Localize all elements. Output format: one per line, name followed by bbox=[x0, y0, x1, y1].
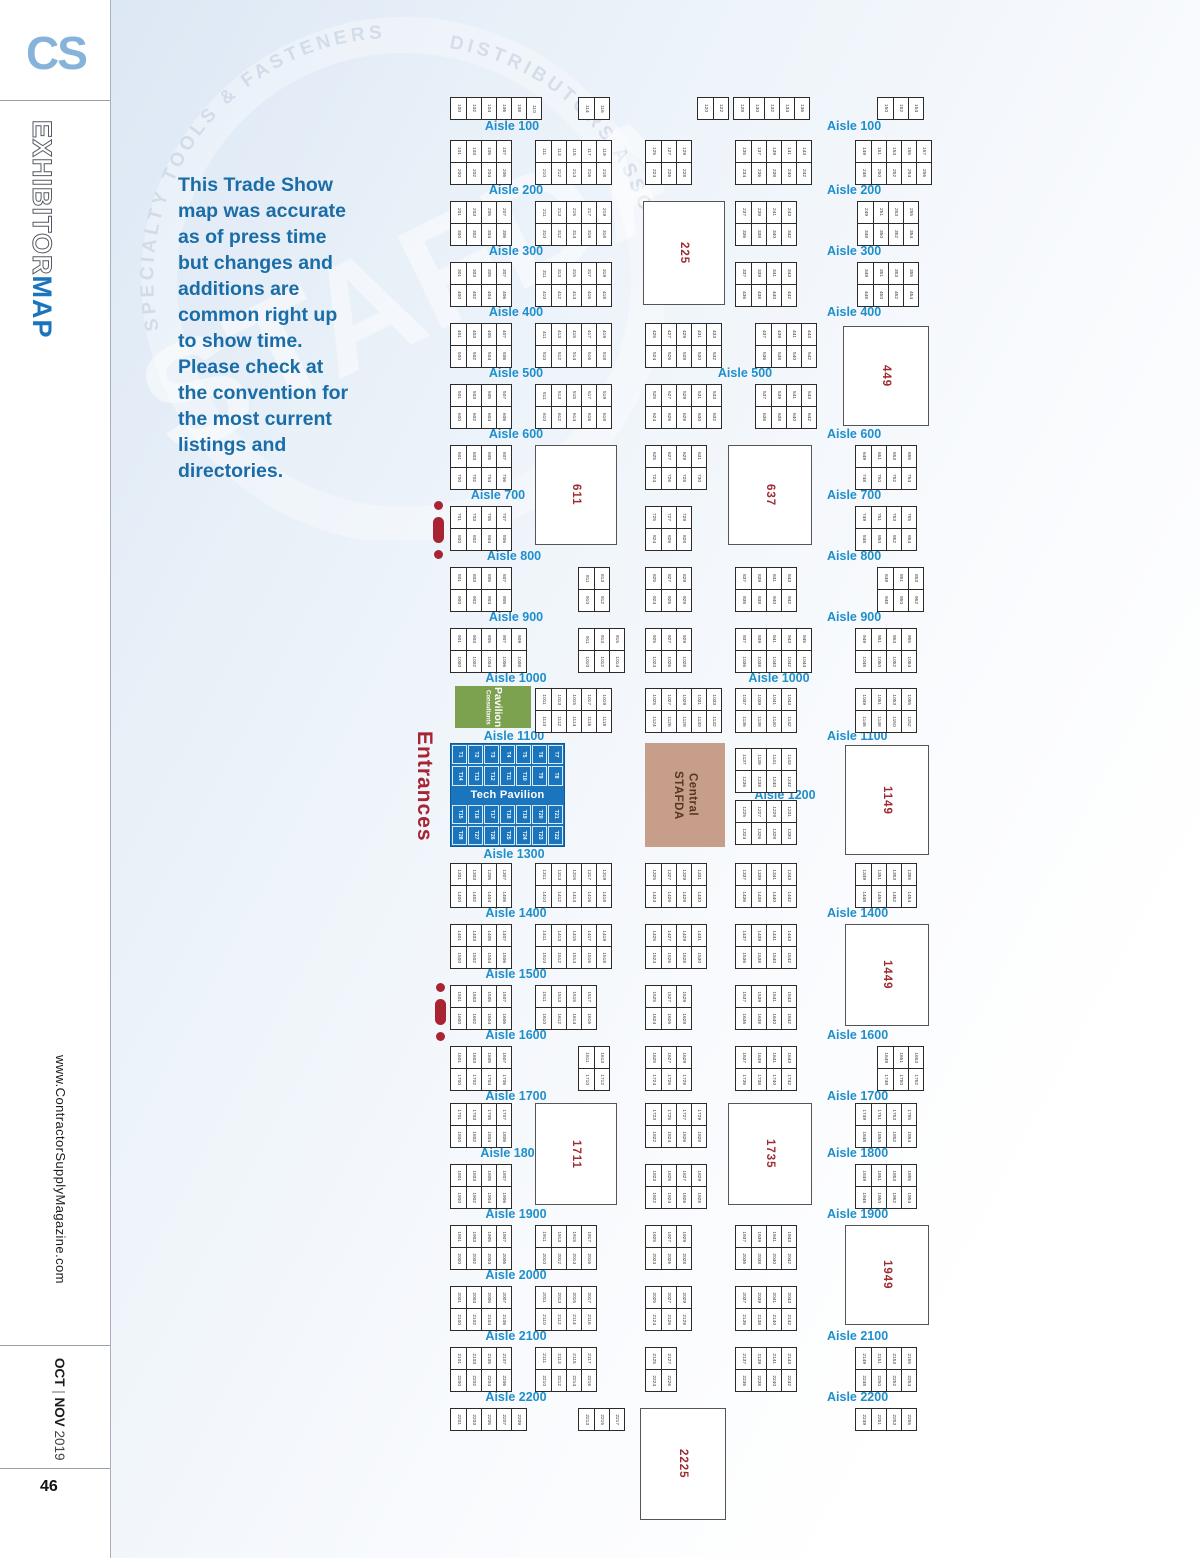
booth-number: 1307 bbox=[502, 869, 507, 880]
booth-number: 1319 bbox=[602, 869, 607, 880]
booth-cell: 2216 bbox=[581, 1370, 596, 1391]
booth-number: 953 bbox=[892, 635, 897, 643]
booth-cell: 618 bbox=[596, 407, 611, 428]
booth-cell: 951 bbox=[871, 629, 886, 650]
booth-cell: 929 bbox=[676, 629, 691, 650]
booth-number: 1602 bbox=[472, 1013, 477, 1024]
booth-cell: 306 bbox=[496, 224, 511, 245]
booth-cell: 2100 bbox=[451, 1309, 466, 1330]
booth-cell: 913 bbox=[594, 629, 609, 650]
booth-number: 1537 bbox=[741, 991, 746, 1002]
booth-cell: 1501 bbox=[451, 986, 466, 1007]
booth-cell: 1755 bbox=[901, 1104, 916, 1125]
booth-number: 443 bbox=[807, 330, 812, 338]
booth-block: 221322152217 bbox=[578, 1408, 625, 1431]
big-booth: 1149 bbox=[845, 745, 929, 855]
booth-number: 1526 bbox=[667, 952, 672, 963]
booth-cell: 707 bbox=[496, 507, 511, 528]
booth-number: 1712 bbox=[600, 1074, 605, 1085]
booth-block: 21372139214121432236223822402242 bbox=[735, 1347, 797, 1392]
booth-number: 136 bbox=[800, 104, 805, 112]
booth-cell: 2002 bbox=[466, 1248, 481, 1269]
booth-number: 1901 bbox=[456, 1231, 461, 1242]
booth-cell: 1110 bbox=[536, 711, 551, 732]
booth-row: 1636163816401642 bbox=[736, 1007, 796, 1029]
booth-number: 850 bbox=[877, 535, 882, 543]
booth-cell: 1524 bbox=[646, 947, 661, 968]
booth-number: 1900 bbox=[456, 1192, 461, 1203]
booth-number: 2139 bbox=[757, 1353, 762, 1364]
booth-number: 1702 bbox=[472, 1074, 477, 1085]
booth-number: 438 bbox=[757, 291, 762, 299]
booth-cell: 510 bbox=[536, 346, 551, 367]
booth-cell: 116 bbox=[594, 98, 609, 119]
tech-booth-cell: T9 bbox=[532, 766, 547, 785]
aisle-label: Aisle 1400 bbox=[485, 906, 546, 920]
booth-cell: 1325 bbox=[646, 864, 661, 885]
booth-number: 530 bbox=[697, 352, 702, 360]
booth-row: 811813 bbox=[579, 568, 609, 589]
booth-cell: 1702 bbox=[466, 1069, 481, 1090]
booth-number: 614 bbox=[572, 413, 577, 421]
booth-number: 1410 bbox=[541, 891, 546, 902]
booth-cell: 907 bbox=[496, 629, 511, 650]
booth-number: 807 bbox=[502, 574, 507, 582]
booth-row: 911913915 bbox=[579, 629, 624, 650]
booth-number: 1905 bbox=[487, 1231, 492, 1242]
booth-row: 101103105107 bbox=[451, 141, 511, 162]
booth-number: 1625 bbox=[651, 1052, 656, 1063]
booth-block: 164916511653174817501752 bbox=[877, 1046, 924, 1091]
booth-number: 1911 bbox=[541, 1231, 546, 1241]
booth-row: 410412414416418 bbox=[536, 284, 611, 306]
booth-number: 804 bbox=[487, 535, 492, 543]
booth-number: 519 bbox=[602, 391, 607, 399]
aisle-label: Aisle 100 bbox=[485, 119, 539, 133]
booth-number: 353 bbox=[894, 269, 899, 277]
booth-cell: 936 bbox=[736, 590, 751, 611]
booth-row: 824826828 bbox=[646, 528, 691, 550]
booth-cell: 1500 bbox=[451, 947, 466, 968]
booth-cell: 1624 bbox=[646, 1008, 661, 1029]
booth-cell: 1948 bbox=[856, 1187, 871, 1208]
booth-cell: 1848 bbox=[856, 1126, 871, 1147]
booth-cell: 1603 bbox=[466, 1047, 481, 1068]
booth-cell: 700 bbox=[451, 468, 466, 489]
booth-cell: 2249 bbox=[856, 1409, 871, 1430]
booth-cell: 900 bbox=[451, 590, 466, 611]
booth-block: 925927929102410261028 bbox=[645, 628, 692, 673]
booth-cell: 1803 bbox=[466, 1165, 481, 1186]
booth-cell: 107 bbox=[496, 141, 511, 162]
booth-number: 441 bbox=[792, 330, 797, 338]
booth-number: 2040 bbox=[772, 1253, 777, 1264]
booth-row: 162516271629 bbox=[646, 1047, 691, 1068]
booth-cell: 410 bbox=[536, 285, 551, 306]
booth-number: 1031 bbox=[697, 694, 702, 705]
booth-row: 501503505507 bbox=[451, 385, 511, 406]
consultants-pavilion-line2: Pavilion bbox=[491, 687, 503, 727]
booth-number: 802 bbox=[472, 535, 477, 543]
booth-cell: 2104 bbox=[481, 1309, 496, 1330]
booth-cell: 640 bbox=[786, 407, 801, 428]
booth-number: 955 bbox=[907, 635, 912, 643]
tech-booth-cell: T11 bbox=[500, 766, 515, 785]
booth-number: 727 bbox=[667, 513, 672, 521]
booth-block: 525527529531533624626628630632 bbox=[645, 384, 722, 429]
booth-block: 601603605607700702704706 bbox=[450, 445, 512, 490]
booth-number: 1518 bbox=[602, 952, 607, 963]
booth-cell: 2102 bbox=[466, 1309, 481, 1330]
booth-block: 1611161317101712 bbox=[578, 1046, 610, 1091]
aisle-label: Aisle 1000 bbox=[748, 671, 809, 685]
booth-number: 512 bbox=[557, 352, 562, 360]
booth-number: 2025 bbox=[651, 1292, 656, 1303]
tech-booth-cell: T24 bbox=[516, 826, 531, 845]
booth-cell: 536 bbox=[756, 346, 771, 367]
booth-number: 1755 bbox=[907, 1109, 912, 1120]
booth-row: 1436143814401442 bbox=[736, 885, 796, 907]
booth-number: 1823 bbox=[651, 1170, 656, 1181]
booth-number: 1939 bbox=[757, 1231, 762, 1242]
booth-number: 517 bbox=[587, 391, 592, 399]
booth-row: 1424142614281430 bbox=[646, 885, 706, 907]
booth-row: 10111013101510171019 bbox=[536, 689, 611, 710]
booth-cell: 829 bbox=[676, 568, 691, 589]
booth-number: 1313 bbox=[557, 869, 562, 880]
booth-number: 1606 bbox=[502, 1013, 507, 1024]
booth-row: 1823182518271829 bbox=[646, 1165, 706, 1186]
booth-number: 1511 bbox=[541, 991, 546, 1001]
booth-number: 403 bbox=[472, 330, 477, 338]
booth-number: 116 bbox=[600, 105, 605, 113]
aisle-label: Aisle 1900 bbox=[827, 1207, 888, 1221]
booth-cell: 1939 bbox=[751, 1226, 766, 1247]
booth-number: 253 bbox=[894, 208, 899, 216]
booth-block: 100102104106108110 bbox=[450, 97, 542, 120]
booth-number: 905 bbox=[487, 635, 492, 643]
booth-number: 1904 bbox=[487, 1192, 492, 1203]
tech-booth-cell: T16 bbox=[468, 805, 483, 824]
booth-cell: 1514 bbox=[566, 947, 581, 968]
booth-number: 913 bbox=[600, 635, 605, 643]
booth-cell: 1640 bbox=[766, 1008, 781, 1029]
booth-number: 1742 bbox=[787, 1074, 792, 1085]
booth-block: 849851853948950952 bbox=[877, 567, 924, 612]
booth-cell: 2213 bbox=[579, 1409, 594, 1430]
booth-number: 706 bbox=[502, 474, 507, 482]
aisle-label: Aisle 700 bbox=[827, 488, 881, 502]
tech-pavilion-row: T28T27T26T25T24T23T22 bbox=[451, 825, 564, 846]
booth-number: 1417 bbox=[587, 930, 592, 941]
booth-cell: 318 bbox=[596, 224, 611, 245]
booth-block: 1411141314151417141915101512151415161518 bbox=[535, 924, 612, 969]
booth-cell: 417 bbox=[581, 324, 596, 345]
booth-cell: 1442 bbox=[781, 886, 796, 907]
booth-cell: 1405 bbox=[481, 925, 496, 946]
booth-cell: 104 bbox=[481, 98, 496, 119]
booth-block: 1011101310151017101911101112111411161118 bbox=[535, 688, 612, 733]
tech-booth-number: T14 bbox=[457, 771, 462, 780]
tech-booth-number: T21 bbox=[553, 810, 558, 819]
booth-row: 135137139141143 bbox=[736, 141, 811, 162]
booth-number: 120 bbox=[703, 104, 708, 112]
booth-cell: 1039 bbox=[751, 689, 766, 710]
tech-booth-number: T19 bbox=[521, 810, 526, 819]
tech-booth-cell: T23 bbox=[532, 826, 547, 845]
booth-number: 726 bbox=[667, 474, 672, 482]
booth-number: 1441 bbox=[772, 930, 777, 941]
booth-number: 234 bbox=[741, 169, 746, 177]
booth-block: 15011503150515071600160216041606 bbox=[450, 985, 512, 1030]
entrance-marker-bar bbox=[433, 517, 444, 543]
booth-row: 437439441443 bbox=[756, 324, 816, 345]
booth-number: 2141 bbox=[772, 1353, 777, 1364]
booth-number: 1848 bbox=[861, 1131, 866, 1142]
booth-number: 337 bbox=[741, 269, 746, 277]
booth-number: 2155 bbox=[907, 1353, 912, 1364]
booth-row: 701703705707 bbox=[451, 507, 511, 528]
booth-number: 1050 bbox=[877, 656, 882, 667]
issue-date: OCT | NOV 2019 bbox=[52, 1358, 67, 1461]
booth-number: 113 bbox=[557, 148, 562, 156]
booth-cell: 1700 bbox=[451, 1069, 466, 1090]
booth-number: 152 bbox=[899, 104, 904, 112]
booth-cell: 143 bbox=[796, 141, 811, 162]
booth-cell: 1430 bbox=[691, 886, 706, 907]
booth-number: 1303 bbox=[472, 869, 477, 880]
booth-cell: 1600 bbox=[451, 1008, 466, 1029]
booth-cell: 134 bbox=[779, 98, 794, 119]
booth-cell: 440 bbox=[766, 285, 781, 306]
booth-row: 600602604606 bbox=[451, 406, 511, 428]
booth-cell: 612 bbox=[551, 407, 566, 428]
booth-number: 1538 bbox=[757, 952, 762, 963]
booth-cell: 1411 bbox=[536, 925, 551, 946]
booth-block: 201203205207300302304306 bbox=[450, 201, 512, 246]
booth-cell: 942 bbox=[781, 590, 796, 611]
tech-booth-cell: T5 bbox=[516, 745, 531, 764]
booth-cell: 1328 bbox=[766, 823, 781, 844]
booth-cell: 1317 bbox=[581, 864, 596, 885]
issue-year: 2019 bbox=[52, 1427, 67, 1461]
booth-block: 17231725172717291822182418261828 bbox=[645, 1103, 707, 1148]
booth-number: 1750 bbox=[899, 1074, 904, 1085]
booth-number: 2041 bbox=[772, 1292, 777, 1303]
booth-cell: 540 bbox=[786, 346, 801, 367]
booth-cell: 1637 bbox=[736, 1047, 751, 1068]
booth-cell: 2116 bbox=[581, 1309, 596, 1330]
booth-number: 725 bbox=[651, 513, 656, 521]
booth-cell: 750 bbox=[871, 468, 886, 489]
booth-number: 1017 bbox=[587, 694, 592, 705]
aisle-label: Aisle 500 bbox=[489, 366, 543, 380]
booth-cell: 1850 bbox=[871, 1126, 886, 1147]
booth-row: 1911191319151917 bbox=[536, 1226, 596, 1247]
masthead: EXHIBITORMAP bbox=[28, 120, 55, 339]
booth-number: 207 bbox=[502, 208, 507, 216]
tech-booth-number: T2 bbox=[473, 752, 478, 758]
booth-cell: 1904 bbox=[481, 1187, 496, 1208]
booth-cell: 450 bbox=[873, 285, 888, 306]
big-booth: 1735 bbox=[728, 1103, 812, 1205]
booth-cell: 1014 bbox=[609, 651, 624, 672]
booth-row: 125127129 bbox=[646, 141, 691, 162]
booth-cell: 2207 bbox=[496, 1409, 511, 1430]
booth-block: 13251327132913311424142614281430 bbox=[645, 863, 707, 908]
booth-cell: 155 bbox=[901, 141, 916, 162]
booth-cell: 706 bbox=[496, 468, 511, 489]
booth-block: 411413415417419510512514516518 bbox=[535, 323, 612, 368]
booth-cell: 1503 bbox=[466, 986, 481, 1007]
booth-number: 1114 bbox=[572, 717, 577, 727]
booth-block: 19111913191519172010201220142016 bbox=[535, 1225, 597, 1270]
booth-number: 950 bbox=[899, 596, 904, 604]
booth-number: 111 bbox=[541, 148, 546, 155]
booth-number: 2212 bbox=[557, 1375, 562, 1386]
booth-cell: 826 bbox=[661, 529, 676, 550]
booth-cell: 128 bbox=[734, 98, 749, 119]
booth-cell: 237 bbox=[736, 202, 751, 223]
booth-number: 1339 bbox=[757, 869, 762, 880]
booth-cell: 226 bbox=[661, 163, 676, 184]
booth-cell: 1152 bbox=[901, 711, 916, 732]
entrance-marker-dot bbox=[434, 550, 443, 559]
big-booth-number: 1449 bbox=[881, 960, 893, 990]
booth-cell: 1607 bbox=[496, 1047, 511, 1068]
booth-number: 1627 bbox=[667, 1052, 672, 1063]
booth-cell: 1513 bbox=[551, 986, 566, 1007]
booth-number: 419 bbox=[602, 330, 607, 338]
booth-cell: 252 bbox=[886, 163, 901, 184]
booth-cell: 517 bbox=[581, 385, 596, 406]
booth-number: 310 bbox=[541, 230, 546, 238]
booth-cell: 1128 bbox=[676, 711, 691, 732]
booth-cell: 1324 bbox=[736, 823, 751, 844]
booth-number: 342 bbox=[787, 230, 792, 238]
booth-cell: 950 bbox=[893, 590, 908, 611]
booth-number: 2043 bbox=[787, 1292, 792, 1303]
booth-cell: 2124 bbox=[646, 1309, 661, 1330]
booth-cell: 1527 bbox=[661, 986, 676, 1007]
booth-row: 200202204206 bbox=[451, 162, 511, 184]
booth-number: 1724 bbox=[651, 1074, 656, 1085]
booth-cell: 1126 bbox=[661, 711, 676, 732]
booth-number: 108 bbox=[517, 104, 522, 112]
booth-number: 1849 bbox=[861, 1170, 866, 1181]
booth-number: 433 bbox=[712, 330, 717, 338]
exhibitor-map: Entrances Consultants Pavilion T1T2T3T4T… bbox=[0, 0, 1200, 1558]
booth-cell: 1854 bbox=[901, 1126, 916, 1147]
booth-block: 20112013201520172110211221142116 bbox=[535, 1286, 597, 1331]
booth-number: 150 bbox=[883, 104, 888, 112]
booth-cell: 2043 bbox=[781, 1287, 796, 1308]
booth-row: 128130132134136 bbox=[734, 98, 809, 119]
booth-cell: 1051 bbox=[871, 689, 886, 710]
booth-cell: 1431 bbox=[691, 925, 706, 946]
booth-cell: 616 bbox=[581, 407, 596, 428]
booth-cell: 1727 bbox=[676, 1104, 691, 1125]
booth-number: 1403 bbox=[472, 930, 477, 941]
booth-number: 155 bbox=[907, 147, 912, 155]
booth-row: 837839841843 bbox=[736, 568, 796, 589]
booth-cell: 1416 bbox=[581, 886, 596, 907]
booth-cell: 1906 bbox=[496, 1187, 511, 1208]
booth-cell: 2105 bbox=[481, 1348, 496, 1369]
booth-number: 524 bbox=[651, 352, 656, 360]
booth-number: 909 bbox=[517, 635, 522, 643]
booth-cell: 2042 bbox=[781, 1248, 796, 1269]
booth-cell: 1907 bbox=[496, 1226, 511, 1247]
booth-number: 439 bbox=[777, 330, 782, 338]
booth-block: 13371339134113431436143814401442 bbox=[735, 863, 797, 908]
booth-number: 1238 bbox=[757, 776, 762, 787]
booth-cell: 1505 bbox=[481, 986, 496, 1007]
booth-number: 425 bbox=[651, 330, 656, 338]
booth-number: 1242 bbox=[787, 776, 792, 787]
booth-number: 319 bbox=[602, 269, 607, 277]
booth-block: 20012003200520072100210221042106 bbox=[450, 1286, 512, 1331]
booth-number: 2006 bbox=[502, 1253, 507, 1264]
booth-number: 952 bbox=[914, 596, 919, 604]
booth-cell: 600 bbox=[451, 407, 466, 428]
booth-number: 1922 bbox=[651, 1192, 656, 1203]
booth-row: 221322152217 bbox=[579, 1409, 624, 1430]
booth-number: 2124 bbox=[651, 1314, 656, 1325]
booth-number: 1738 bbox=[757, 1074, 762, 1085]
booth-row: 211213215217219 bbox=[536, 202, 611, 223]
booth-number: 132 bbox=[770, 104, 775, 112]
booth-number: 2112 bbox=[557, 1314, 562, 1324]
booth-number: 436 bbox=[741, 291, 746, 299]
booth-cell: 256 bbox=[916, 163, 931, 184]
booth-cell: 1000 bbox=[451, 651, 466, 672]
booth-cell: 2137 bbox=[736, 1348, 751, 1369]
booth-cell: 1440 bbox=[766, 886, 781, 907]
booth-cell: 1653 bbox=[908, 1047, 923, 1068]
booth-number: 130 bbox=[755, 104, 760, 112]
entrance-marker-dot bbox=[434, 501, 443, 510]
booth-number: 402 bbox=[472, 291, 477, 299]
booth-block: 249251253255348350352354 bbox=[857, 201, 919, 246]
booth-cell: 1726 bbox=[661, 1069, 676, 1090]
booth-cell: 1917 bbox=[581, 1226, 596, 1247]
booth-row: 174817501752 bbox=[878, 1068, 923, 1090]
booth-number: 929 bbox=[682, 635, 687, 643]
booth-number: 351 bbox=[879, 269, 884, 277]
booth-cell: 1801 bbox=[451, 1165, 466, 1186]
booth-block: 125127129224226228 bbox=[645, 140, 692, 185]
booth-number: 1826 bbox=[682, 1131, 687, 1142]
booth-number: 1343 bbox=[787, 869, 792, 880]
booth-number: 1438 bbox=[757, 891, 762, 902]
booth-number: 312 bbox=[557, 230, 562, 238]
booth-row: 900902904906 bbox=[451, 589, 511, 611]
booth-cell: 955 bbox=[901, 629, 916, 650]
booth-cell: 1903 bbox=[466, 1226, 481, 1247]
booth-row: 937939941943945 bbox=[736, 629, 811, 650]
booth-cell: 415 bbox=[566, 324, 581, 345]
booth-row: 2111211321152117 bbox=[536, 1348, 596, 1369]
tech-pavilion: T1T2T3T4T5T6T7T14T13T12T11T10T9T8 Tech P… bbox=[450, 743, 565, 847]
booth-cell: 1011 bbox=[536, 689, 551, 710]
booth-cell: 2036 bbox=[736, 1248, 751, 1269]
booth-cell: 1401 bbox=[451, 925, 466, 946]
booth-cell: 207 bbox=[496, 202, 511, 223]
booth-cell: 941 bbox=[766, 629, 781, 650]
booth-cell: 725 bbox=[646, 507, 661, 528]
booth-cell: 343 bbox=[781, 263, 796, 284]
